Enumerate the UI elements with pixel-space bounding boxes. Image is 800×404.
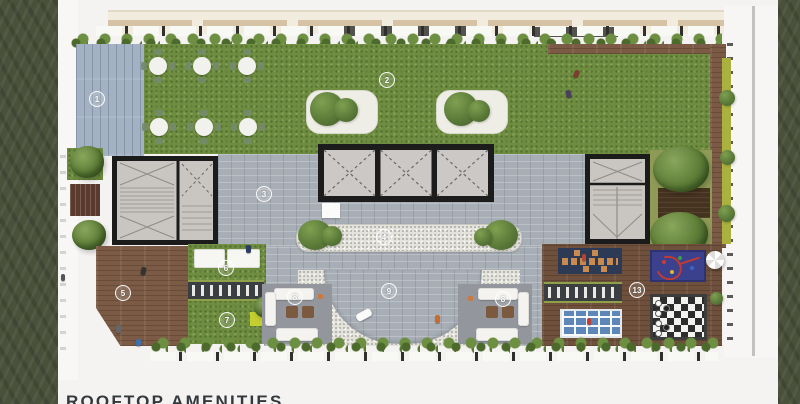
- shrub: [334, 98, 358, 122]
- skylight-drawing: [318, 144, 494, 202]
- stair-core-right: [585, 154, 650, 244]
- marker-3: 3: [256, 186, 272, 202]
- blue-sun-deck: [76, 44, 144, 156]
- marker-8-right: 8: [495, 291, 511, 307]
- giant-chessboard: [650, 294, 707, 340]
- page-title: ROOFTOP AMENITIES: [66, 392, 284, 404]
- person-figure: [246, 245, 251, 253]
- tree: [653, 146, 709, 192]
- shrub: [719, 90, 735, 106]
- shrub: [718, 205, 735, 222]
- left-facade-windows: [60, 150, 66, 350]
- timber-deck: [96, 246, 190, 346]
- brick-feature-wall: [70, 184, 100, 216]
- person-figure: [582, 254, 586, 261]
- dining-table-set: [232, 51, 262, 81]
- person-figure: [61, 274, 65, 281]
- person-figure: [435, 315, 440, 323]
- person-figure: [136, 339, 141, 346]
- skylight-block: [318, 144, 494, 202]
- shrub: [468, 100, 490, 122]
- rooftop-plan-canvas: 1 2 3 4 5 6 7 8 8 9 13 ROOFTOP AMENITIES: [0, 0, 800, 404]
- parasol: [706, 251, 724, 269]
- tree: [72, 220, 106, 250]
- stair-core-right-drawing: [585, 154, 650, 244]
- dining-table-set: [189, 112, 219, 142]
- reflexology-path-right: [544, 282, 622, 303]
- shrub: [720, 150, 735, 165]
- marker-9: 9: [381, 283, 397, 299]
- bench: [322, 203, 340, 218]
- rooftop-lawn: [144, 44, 712, 154]
- marker-8-left: 8: [287, 289, 303, 305]
- hopscotch-court: [558, 248, 622, 274]
- stair-core-left: [112, 156, 218, 245]
- person-figure: [587, 318, 591, 325]
- dining-table-set: [143, 51, 173, 81]
- lounge-right: [458, 284, 532, 344]
- stair-core-left-drawing: [112, 156, 218, 245]
- dining-table-set: [144, 112, 174, 142]
- dining-table-set: [233, 112, 263, 142]
- left-green-band: [0, 0, 58, 404]
- marker-13: 13: [629, 282, 645, 298]
- tree: [70, 146, 104, 178]
- marker-1: 1: [89, 91, 105, 107]
- right-green-band: [778, 0, 800, 404]
- board-game-court: [560, 309, 622, 338]
- reflexology-path-left: [188, 280, 264, 301]
- bottom-planter-boxes: [150, 352, 718, 361]
- marker-4: 4: [376, 229, 392, 245]
- dining-table-set: [187, 51, 217, 81]
- marker-2: 2: [379, 72, 395, 88]
- lawn-top-boardwalk: [548, 44, 712, 54]
- shrub: [322, 226, 342, 246]
- shrub: [474, 228, 492, 246]
- person-figure: [116, 325, 121, 333]
- marker-6: 6: [218, 260, 234, 276]
- marker-5: 5: [115, 285, 131, 301]
- marker-7: 7: [219, 312, 235, 328]
- right-facade-parapet-line: [752, 6, 755, 356]
- potted-plant: [710, 292, 723, 305]
- kids-play-mat: [650, 250, 706, 282]
